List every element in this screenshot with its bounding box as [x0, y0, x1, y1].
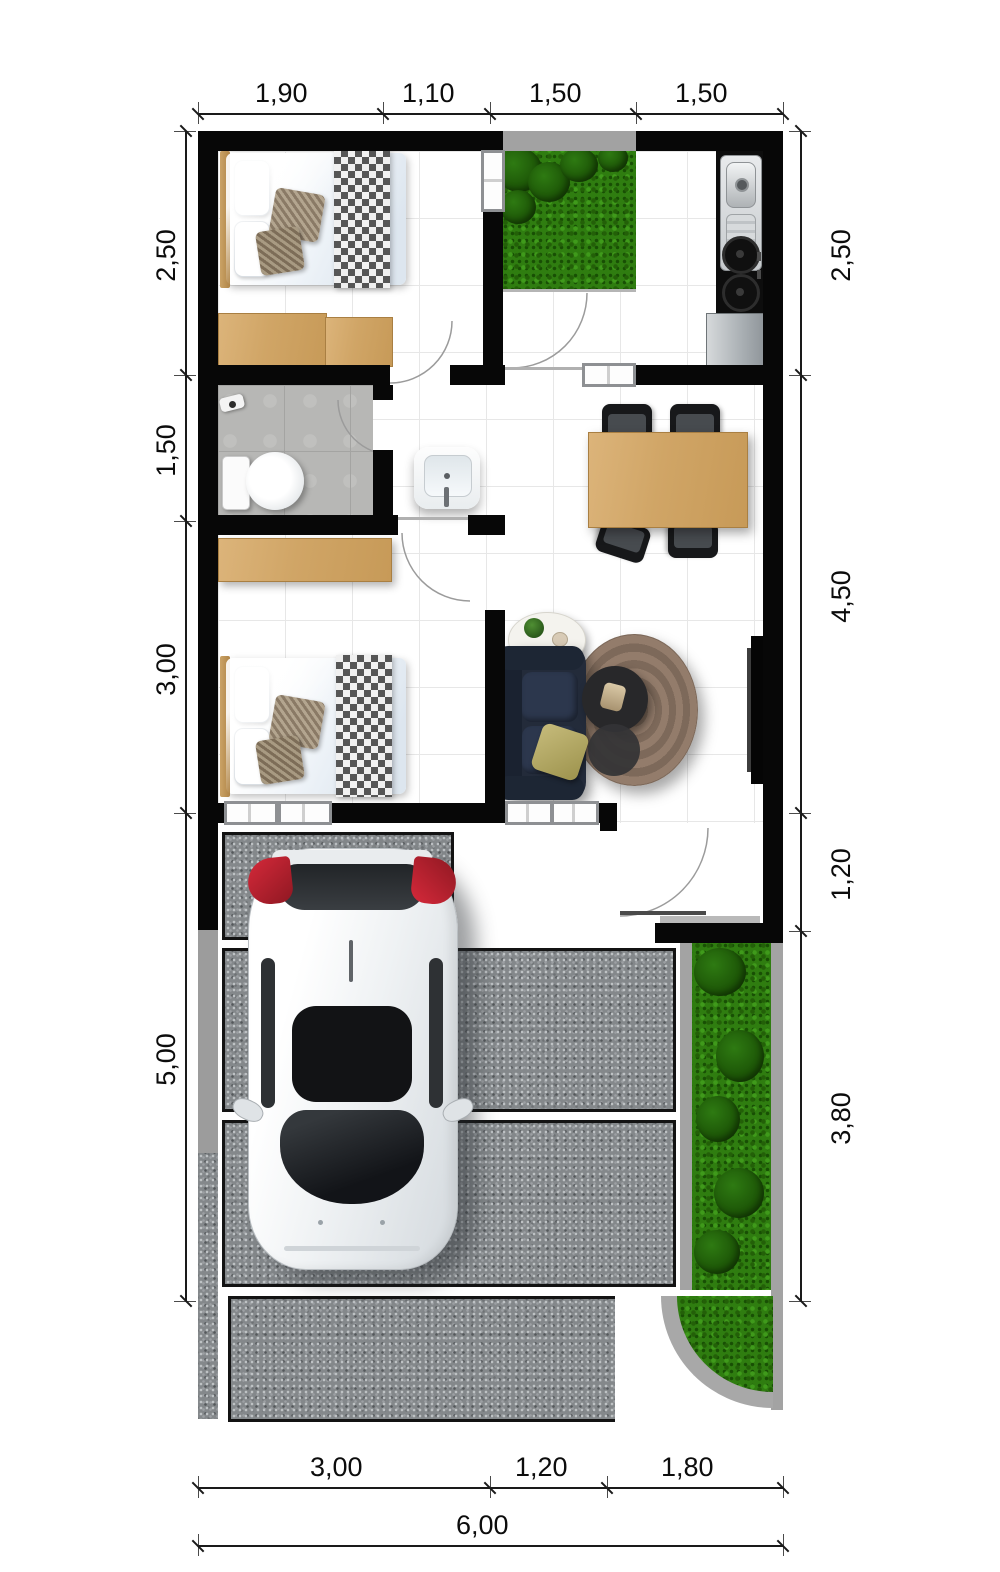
window-kitchen-pass: [582, 363, 636, 387]
porch-sill: [660, 916, 760, 923]
wall-top-courtyard: [490, 131, 636, 151]
dim-label-top-4: 1,50: [675, 78, 728, 109]
dim-line-left: [185, 131, 187, 1301]
dim-label-bottom-1: 3,00: [310, 1452, 363, 1483]
wall-hall-south-stub: [468, 515, 505, 535]
window-living-south-2: [551, 801, 599, 825]
dim-label-right-3: 1,20: [826, 848, 857, 901]
wall-top-left: [198, 131, 490, 151]
door-arc-hall: [512, 293, 587, 368]
window-mullion: [248, 804, 251, 822]
dim-label-left-2: 1,50: [151, 424, 182, 477]
wall-top-right: [636, 131, 783, 151]
window-bedroom2-south-2: [278, 801, 332, 825]
tv-bracket: [747, 648, 751, 772]
wall-bedroom1-south: [198, 365, 390, 385]
dim-label-left-1: 2,50: [151, 229, 182, 282]
wall-bathroom-south: [198, 515, 398, 535]
dim-label-right-1: 2,50: [826, 229, 857, 282]
dim-label-bottom-2: 1,20: [515, 1452, 568, 1483]
tv: [751, 636, 763, 784]
dim-line-total: [198, 1545, 783, 1547]
dim-label-right-2: 4,50: [826, 570, 857, 623]
wall-bathroom-east-top: [373, 385, 393, 400]
dim-label-top-3: 1,50: [529, 78, 582, 109]
door-arc-bedroom1: [390, 321, 452, 383]
wall-porch-south: [655, 923, 783, 943]
window-mullion: [607, 366, 610, 384]
window-mullion: [526, 804, 529, 822]
wall-kitchen-south: [633, 365, 763, 385]
opening-header: [505, 367, 582, 370]
dim-label-right-4: 3,80: [826, 1092, 857, 1145]
dim-label-bottom-3: 1,80: [661, 1452, 714, 1483]
dim-label-total-width: 6,00: [456, 1510, 509, 1541]
window-mullion: [302, 804, 305, 822]
door-header: [398, 517, 468, 520]
dim-label-left-4: 5,00: [151, 1033, 182, 1086]
dim-label-top-2: 1,10: [402, 78, 455, 109]
dim-label-left-3: 3,00: [151, 643, 182, 696]
wall-right: [763, 131, 783, 943]
dim-line-right: [800, 131, 802, 1301]
floor-plan: 1,90 1,10 1,50 1,50 2,50 1,50 3,00 5,00 …: [0, 0, 1000, 1572]
window-mullion: [484, 179, 502, 182]
window-bedroom2-south-1: [224, 801, 278, 825]
door-arc-bedroom2: [402, 533, 470, 601]
wall-bedroom2-east: [485, 610, 505, 823]
dim-label-top-1: 1,90: [255, 78, 308, 109]
door-arc-entry: [620, 828, 708, 916]
window-bedroom1-east: [481, 150, 505, 212]
window-living-south-1: [505, 801, 553, 825]
wall-foyer-stub: [600, 823, 617, 831]
window-mullion: [572, 804, 575, 822]
door-arc-bathroom: [338, 400, 393, 455]
